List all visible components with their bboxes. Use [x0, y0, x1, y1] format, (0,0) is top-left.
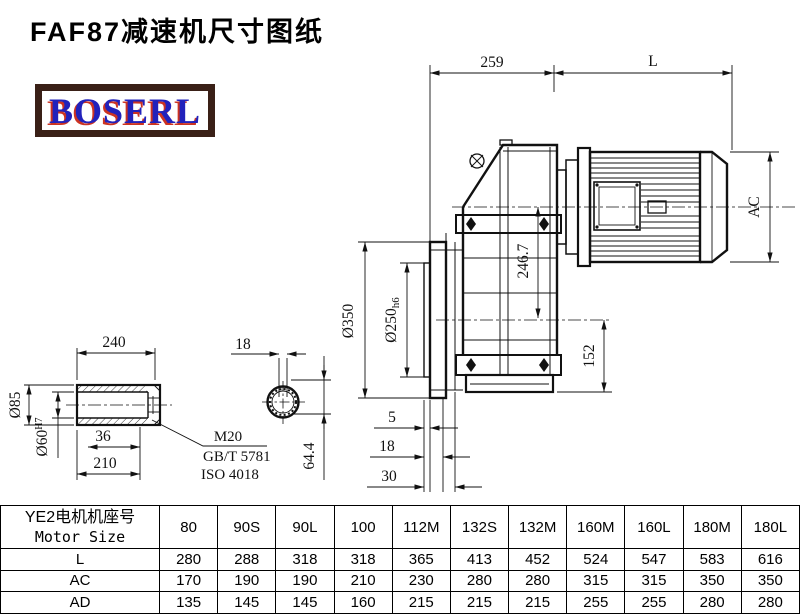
table-row-label: AD — [1, 592, 160, 614]
dimension-value-cell: 280 — [741, 592, 799, 614]
dim-label-246-7: 246.7 — [515, 243, 532, 278]
dim-label-18: 18 — [379, 438, 395, 455]
dimension-value-cell: 255 — [567, 592, 625, 614]
dimension-value-cell: 215 — [509, 592, 567, 614]
frame-size-column-header: 132S — [450, 506, 508, 549]
dim-label-240: 240 — [102, 334, 126, 351]
dimension-value-cell: 280 — [160, 549, 218, 571]
dimension-value-cell: 135 — [160, 592, 218, 614]
table-row-label: AC — [1, 570, 160, 592]
dimension-value-cell: 280 — [683, 592, 741, 614]
dimension-value-cell: 145 — [276, 592, 334, 614]
frame-size-column-header: 132M — [509, 506, 567, 549]
dimension-value-cell: 318 — [334, 549, 392, 571]
dimension-value-cell: 524 — [567, 549, 625, 571]
dimension-value-cell: 230 — [392, 570, 450, 592]
dimension-value-cell: 210 — [334, 570, 392, 592]
dim-label-L: L — [648, 53, 657, 70]
dimension-value-cell: 350 — [683, 570, 741, 592]
frame-size-column-header: 80 — [160, 506, 218, 549]
page: FAF87减速机尺寸图纸 BOSERL — [0, 0, 800, 614]
table-row: L280288318318365413452524547583616 — [1, 549, 800, 571]
frame-size-column-header: 160L — [625, 506, 683, 549]
frame-size-column-header: 90S — [218, 506, 276, 549]
table-row: AD135145145160215215215255255280280 — [1, 592, 800, 614]
thread-note-gb: GB/T 5781 — [203, 449, 271, 465]
frame-size-column-header: 180M — [683, 506, 741, 549]
dimension-value-cell: 315 — [567, 570, 625, 592]
dimension-value-cell: 583 — [683, 549, 741, 571]
centerlines — [436, 207, 795, 320]
frame-size-column-header: 90L — [276, 506, 334, 549]
dimension-drawing: 259 L AC 246.7 152 Ø350 Ø250h6 5 18 30 — [0, 0, 800, 505]
motor-size-table: YE2电机机座号Motor Size8090S90L100112M132S132… — [0, 505, 800, 614]
dimension-value-cell: 350 — [741, 570, 799, 592]
table-row-label: L — [1, 549, 160, 571]
dimension-value-cell: 160 — [334, 592, 392, 614]
dimension-value-cell: 616 — [741, 549, 799, 571]
frame-size-column-header: 160M — [567, 506, 625, 549]
dimension-value-cell: 170 — [160, 570, 218, 592]
thread-note-m20: M20 — [214, 429, 242, 445]
dimension-value-cell: 547 — [625, 549, 683, 571]
dimension-value-cell: 215 — [450, 592, 508, 614]
dim-label-259: 259 — [480, 54, 504, 71]
dimension-value-cell: 318 — [276, 549, 334, 571]
motor-size-header-cell: YE2电机机座号Motor Size — [1, 506, 160, 549]
main-view-dimension-labels: 259 L AC 246.7 152 Ø350 Ø250h6 5 18 30 — [340, 53, 763, 485]
dimension-value-cell: 288 — [218, 549, 276, 571]
dim-label-30: 30 — [381, 468, 397, 485]
dimension-value-cell: 365 — [392, 549, 450, 571]
main-view-dimensions — [358, 65, 779, 492]
table-header-row: YE2电机机座号Motor Size8090S90L100112M132S132… — [1, 506, 800, 549]
terminal-box — [594, 182, 640, 230]
dim-label-64-4: 64.4 — [301, 442, 318, 469]
dim-label-210: 210 — [93, 455, 117, 472]
dim-label-dia250h6: Ø250h6 — [383, 297, 402, 343]
motor-size-header-en: Motor Size — [1, 528, 159, 546]
shaft-detail-labels: 240 Ø85 Ø60H7 36 210 M20 GB/T 5781 ISO 4… — [7, 334, 271, 483]
dimension-value-cell: 255 — [625, 592, 683, 614]
dimension-value-cell: 280 — [509, 570, 567, 592]
dim-label-152: 152 — [581, 344, 598, 367]
thread-note-iso: ISO 4018 — [201, 467, 259, 483]
dimension-value-cell: 145 — [218, 592, 276, 614]
frame-size-column-header: 112M — [392, 506, 450, 549]
dimension-value-cell: 280 — [450, 570, 508, 592]
dimension-value-cell: 452 — [509, 549, 567, 571]
dimension-value-cell: 215 — [392, 592, 450, 614]
motor-size-header-cn: YE2电机机座号 — [1, 508, 159, 527]
main-view-gearbox — [424, 140, 561, 398]
frame-size-column-header: 180L — [741, 506, 799, 549]
dim-label-36: 36 — [95, 428, 111, 445]
dim-label-dia350: Ø350 — [340, 304, 357, 339]
frame-size-column-header: 100 — [334, 506, 392, 549]
dimension-value-cell: 190 — [218, 570, 276, 592]
dim-label-keyway-18: 18 — [235, 336, 251, 353]
table-row: AC170190190210230280280315315350350 — [1, 570, 800, 592]
shaft-detail-view — [66, 385, 172, 425]
dimension-value-cell: 413 — [450, 549, 508, 571]
dim-label-5: 5 — [388, 409, 396, 426]
dim-label-dia85: Ø85 — [7, 391, 24, 418]
dimension-value-cell: 315 — [625, 570, 683, 592]
dim-label-AC: AC — [746, 196, 763, 218]
dimension-value-cell: 190 — [276, 570, 334, 592]
dim-label-dia60h7: Ø60H7 — [34, 418, 51, 457]
